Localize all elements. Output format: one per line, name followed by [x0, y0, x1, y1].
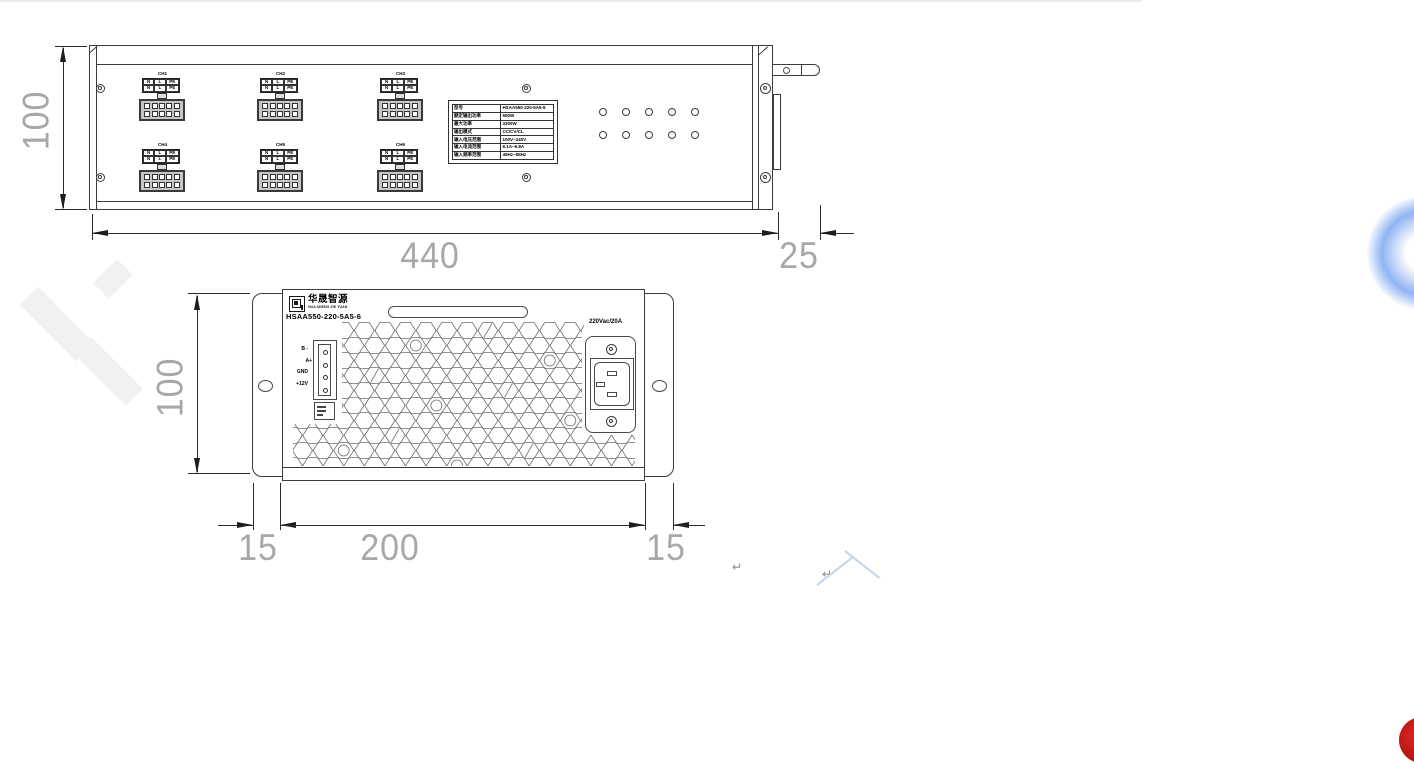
iec-pin-bottom — [607, 392, 617, 397]
model-number: HSAA550-220-5A5-6 — [286, 313, 361, 321]
connector-pin — [152, 174, 158, 181]
iec-pin-left — [596, 382, 605, 387]
spec-row: 额定输出功率550W — [453, 112, 554, 120]
connector-pin — [292, 111, 298, 118]
connector-housing — [257, 170, 303, 192]
connector-pin — [166, 174, 172, 181]
channel-label: CH6 — [377, 143, 424, 148]
connector-pin — [397, 111, 403, 118]
channel-pin-table: NLPENLPE — [142, 149, 180, 164]
connector-pin — [284, 111, 290, 118]
connector-housing — [257, 99, 303, 121]
channel-connector-ch6: CH6NLPENLPE — [377, 143, 424, 193]
screw-icon — [96, 84, 105, 93]
connector-pin — [284, 174, 290, 181]
dim-value-440: 440 — [393, 237, 467, 274]
spec-row-value: 45Hz~65Hz — [501, 152, 554, 160]
connector-pin — [382, 182, 388, 189]
connector-pin — [292, 103, 298, 110]
led-hole — [691, 131, 699, 139]
connector-pin — [152, 182, 158, 189]
connector-pin — [159, 103, 165, 110]
dim-value-15-right: 15 — [640, 529, 692, 566]
connector-pin — [390, 103, 396, 110]
spec-label: 型号HSAA550-220-5A5-6额定输出功率550W最大功率3300W输出… — [448, 100, 558, 164]
bracket-plate — [773, 94, 781, 170]
connector-pin — [412, 103, 418, 110]
connector-pin — [382, 174, 388, 181]
handle-slot — [388, 306, 528, 318]
connector-pin — [404, 103, 410, 110]
connector-pin — [174, 182, 180, 189]
connector-pin — [277, 182, 283, 189]
connector-pin — [404, 182, 410, 189]
connector-pin — [390, 174, 396, 181]
pin-cell: L — [272, 85, 283, 92]
connector-pin — [412, 174, 418, 181]
spec-row: 输出模式CC/CV/CL — [453, 128, 554, 136]
connector-pin — [144, 182, 150, 189]
power-rating-label: 220Vac/20A — [589, 319, 622, 325]
connector-housing — [139, 170, 185, 192]
channel-connector-ch2: CH2NLPENLPE — [257, 72, 304, 122]
channel-pin-table: NLPENLPE — [260, 78, 298, 93]
channel-pin-table: NLPENLPE — [260, 149, 298, 164]
spec-row-value: 550W — [501, 112, 554, 120]
pin-cell: L — [392, 156, 403, 163]
spec-row-label: 型号 — [453, 105, 501, 113]
connector-pin — [174, 111, 180, 118]
led-hole — [622, 108, 630, 116]
pin-cell: N — [261, 156, 272, 163]
connector-pin — [174, 174, 180, 181]
page-top-rule — [0, 0, 1141, 2]
connector-pin — [397, 103, 403, 110]
led-hole — [691, 108, 699, 116]
assistant-float-button[interactable] — [1367, 196, 1414, 310]
channel-label: CH2 — [257, 72, 304, 77]
connector-latch — [157, 164, 167, 170]
connector-pin — [270, 111, 276, 118]
pin-cell: PE — [404, 85, 418, 92]
pin-cell: L — [154, 85, 165, 92]
pin-cell: N — [381, 156, 392, 163]
spec-row-label: 输入频率范围 — [453, 152, 501, 160]
connector-latch — [157, 93, 167, 99]
connector-pin — [397, 174, 403, 181]
signal-pin-label: GND — [293, 370, 308, 375]
connector-pin — [262, 103, 268, 110]
rack-handle — [772, 64, 820, 76]
pin-cell: PE — [284, 85, 298, 92]
pin-cell: PE — [166, 85, 180, 92]
channel-connector-ch4: CH4NLPENLPE — [139, 143, 186, 193]
connector-pin — [412, 182, 418, 189]
spec-row-label: 输入电流范围 — [453, 144, 501, 152]
channel-pin-table: NLPENLPE — [380, 78, 418, 93]
connector-pin — [166, 111, 172, 118]
connector-latch — [395, 93, 405, 99]
paragraph-mark-1: ↵ — [732, 561, 742, 573]
led-hole — [668, 131, 676, 139]
led-hole — [668, 108, 676, 116]
left-ear-slot — [258, 380, 273, 392]
spec-row-label: 额定输出功率 — [453, 112, 501, 120]
connector-pin — [404, 111, 410, 118]
connector-pin — [159, 182, 165, 189]
led-hole — [622, 131, 630, 139]
pin-cell: L — [154, 156, 165, 163]
handle-hole — [783, 67, 790, 74]
spec-row: 最大功率3300W — [453, 120, 554, 128]
brand-name-en: HUA SHENG ZHI YUAN — [308, 306, 347, 310]
connector-pin — [284, 103, 290, 110]
spec-row-label: 输入电压范围 — [453, 136, 501, 144]
pin-cell: L — [392, 85, 403, 92]
connector-pin — [404, 174, 410, 181]
signal-pin-label: +12V — [293, 382, 308, 387]
dim-value-200: 200 — [349, 529, 432, 566]
pin-cell: PE — [166, 156, 180, 163]
pin-cell: N — [261, 85, 272, 92]
dip-block — [314, 402, 335, 420]
brand-name-cn: 华晟智源 — [308, 295, 348, 305]
connector-latch — [275, 164, 285, 170]
connector-pin — [166, 103, 172, 110]
screw-icon — [760, 172, 771, 183]
connector-pin — [270, 182, 276, 189]
connector-pin — [174, 103, 180, 110]
pin-cell: L — [272, 156, 283, 163]
connector-pin — [397, 182, 403, 189]
connector-pin — [152, 111, 158, 118]
connector-pin — [390, 111, 396, 118]
connector-housing — [377, 99, 423, 121]
spec-row: 输入电压范围100V~240V — [453, 136, 554, 144]
connector-pin — [292, 182, 298, 189]
dim-value-15-left: 15 — [232, 529, 284, 566]
channel-connector-ch3: CH3NLPENLPE — [377, 72, 424, 122]
signal-pin-dot — [323, 363, 328, 368]
signal-pin-dot — [323, 350, 328, 355]
record-float-button[interactable] — [1399, 717, 1414, 763]
connector-pin — [152, 103, 158, 110]
led-hole — [645, 131, 653, 139]
connector-pin — [284, 182, 290, 189]
connector-housing — [377, 170, 423, 192]
connector-pin — [277, 111, 283, 118]
dim-value-100-top: 100 — [18, 99, 55, 151]
pin-cell: PE — [284, 156, 298, 163]
connector-pin — [144, 103, 150, 110]
connector-pin — [382, 103, 388, 110]
connector-pin — [159, 174, 165, 181]
spec-row-value: 100V~240V — [501, 136, 554, 144]
signal-pin-dot — [323, 388, 328, 393]
screw-icon — [96, 173, 105, 182]
channel-connector-ch5: CH5NLPENLPE — [257, 143, 304, 193]
channel-pin-table: NLPENLPE — [380, 149, 418, 164]
connector-pin — [262, 111, 268, 118]
connector-pin — [277, 103, 283, 110]
channel-label: CH3 — [377, 72, 424, 77]
connector-latch — [275, 93, 285, 99]
spec-row: 型号HSAA550-220-5A5-6 — [453, 105, 554, 113]
led-hole — [599, 131, 607, 139]
top-view-body — [89, 45, 773, 210]
cad-drawing-page: CH1NLPENLPECH2NLPENLPECH3NLPENLPECH4NLPE… — [0, 0, 1414, 771]
spec-row-label: 最大功率 — [453, 120, 501, 128]
channel-label: CH1 — [139, 72, 186, 77]
channel-label: CH4 — [139, 143, 186, 148]
spec-row-value: 3300W — [501, 120, 554, 128]
signal-pin-label: B - — [293, 347, 308, 352]
pin-cell: N — [381, 85, 392, 92]
connector-pin — [270, 103, 276, 110]
connector-pin — [292, 174, 298, 181]
pin-cell: N — [143, 156, 154, 163]
connector-pin — [166, 182, 172, 189]
connector-pin — [390, 182, 396, 189]
spec-row-label: 输出模式 — [453, 128, 501, 136]
dim-value-100-front: 100 — [152, 364, 189, 417]
pin-cell: N — [143, 85, 154, 92]
led-hole — [645, 108, 653, 116]
connector-pin — [262, 182, 268, 189]
dim-value-25: 25 — [778, 237, 820, 274]
connector-pin — [144, 111, 150, 118]
right-ear-slot — [652, 380, 667, 392]
connector-pin — [262, 174, 268, 181]
channel-label: CH5 — [257, 143, 304, 148]
spec-row-value: 6.1A~6.8A — [501, 144, 554, 152]
connector-pin — [277, 174, 283, 181]
spec-row-value: HSAA550-220-5A5-6 — [501, 105, 554, 113]
connector-pin — [270, 174, 276, 181]
channel-connector-ch1: CH1NLPENLPE — [139, 72, 186, 122]
screw-icon — [522, 84, 531, 93]
brand-logo-icon — [289, 296, 305, 312]
spec-row: 输入电流范围6.1A~6.8A — [453, 144, 554, 152]
connector-pin — [382, 111, 388, 118]
screw-icon — [760, 83, 771, 94]
pin-cell: PE — [404, 156, 418, 163]
connector-latch — [395, 164, 405, 170]
connector-housing — [139, 99, 185, 121]
iec-pin-top — [607, 371, 617, 376]
spec-row-value: CC/CV/CL — [501, 128, 554, 136]
screw-icon — [522, 173, 531, 182]
connector-pin — [412, 111, 418, 118]
signal-pin-label: A+ — [297, 359, 312, 364]
led-hole — [599, 108, 607, 116]
spec-row: 输入频率范围45Hz~65Hz — [453, 152, 554, 160]
channel-pin-table: NLPENLPE — [142, 78, 180, 93]
connector-pin — [159, 111, 165, 118]
connector-pin — [144, 174, 150, 181]
